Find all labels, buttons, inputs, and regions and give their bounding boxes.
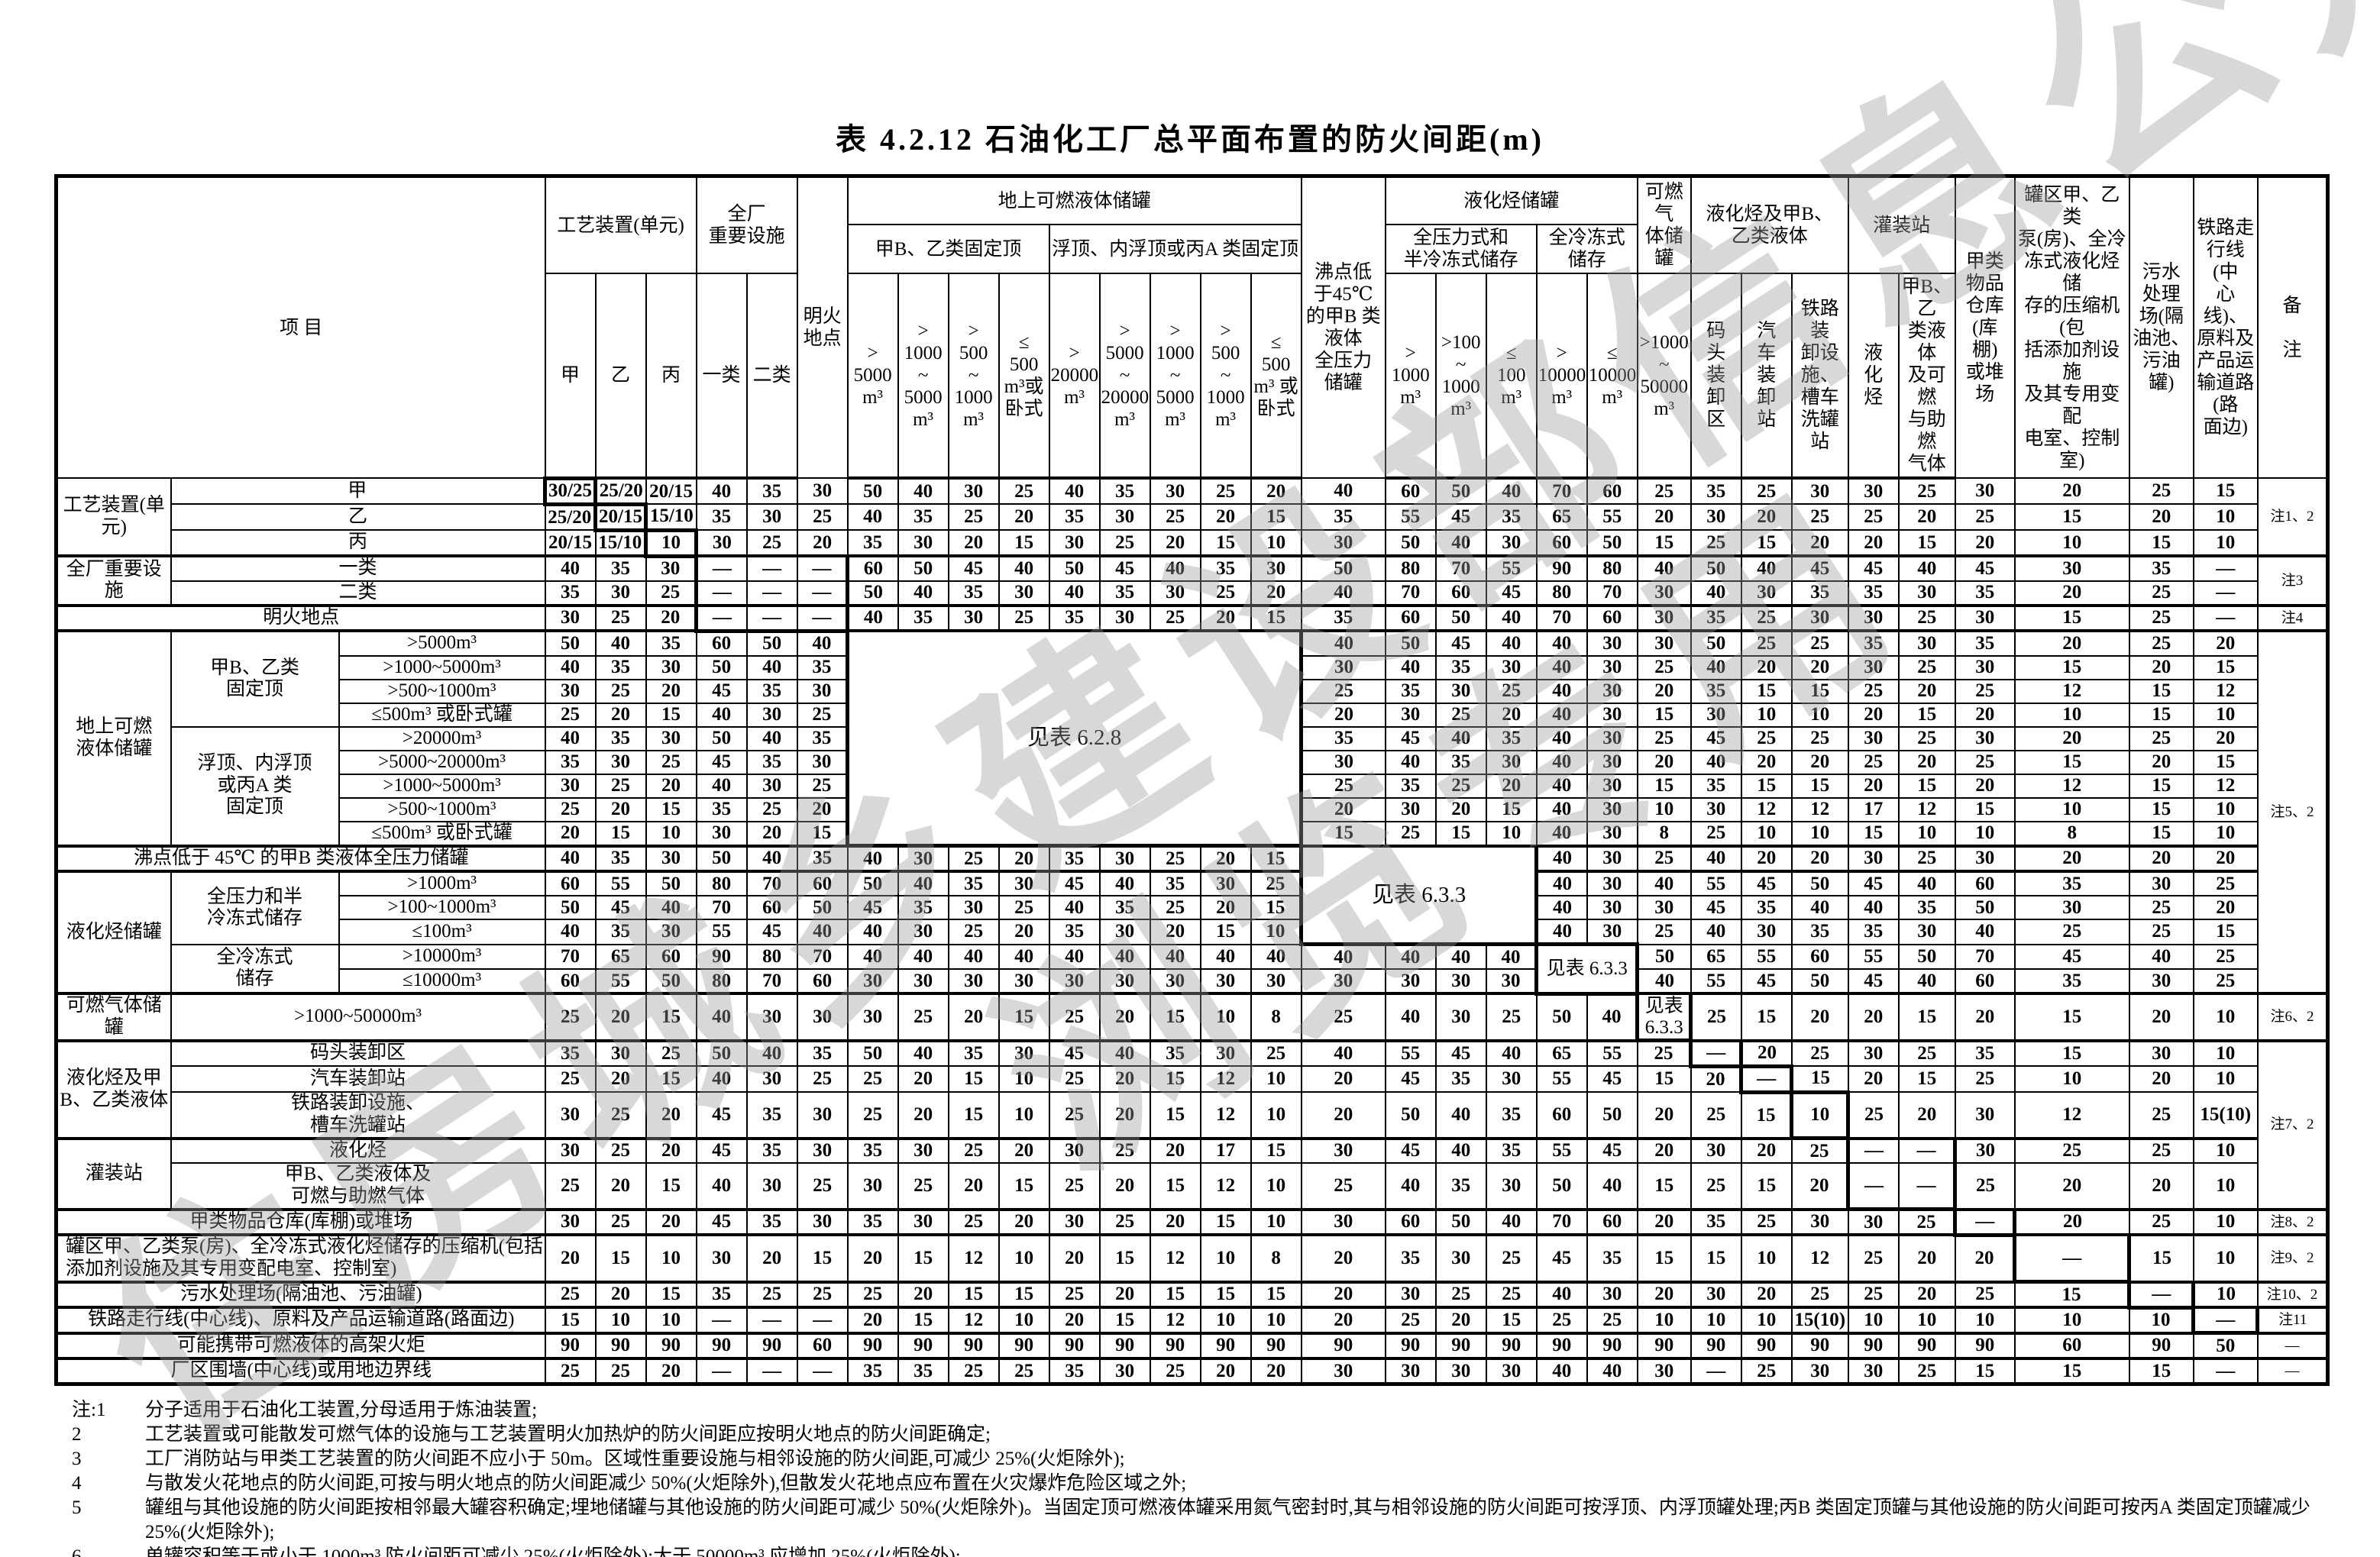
distance-cell: 20	[545, 822, 596, 846]
distance-cell: 50	[1899, 945, 1955, 970]
distance-cell: 30	[1638, 896, 1691, 919]
distance-cell: 25	[1638, 1041, 1691, 1067]
distance-cell: 70	[1386, 581, 1436, 606]
distance-cell: 20	[1792, 751, 1848, 774]
distance-cell: 25	[1955, 751, 2015, 774]
distance-cell: 20/15	[646, 478, 697, 504]
distance-cell: 12	[1741, 798, 1792, 822]
distance-cell: 90	[646, 1333, 697, 1359]
distance-cell: 20	[898, 1066, 949, 1092]
header-cell: >100 ~ 1000 m³	[1436, 273, 1486, 478]
distance-cell: 45	[1691, 896, 1741, 919]
distance-cell: —	[1741, 1066, 1792, 1092]
distance-cell: 25	[999, 896, 1049, 919]
distance-cell: 90	[697, 1333, 747, 1359]
distance-cell: 15	[2194, 751, 2258, 774]
distance-cell: 35	[898, 1358, 949, 1384]
distance-cell: 30	[1100, 606, 1150, 632]
distance-cell: 30	[747, 1066, 797, 1092]
distance-cell: 40	[1899, 969, 1955, 993]
distance-cell: 45	[697, 1139, 747, 1164]
distance-cell: 8	[1251, 993, 1302, 1041]
distance-cell: 50	[1792, 871, 1848, 896]
distance-cell: 10	[2194, 993, 2258, 1041]
distance-cell: 25	[1792, 504, 1848, 530]
distance-cell: 50	[747, 631, 797, 656]
distance-cell: 25	[1201, 581, 1251, 606]
distance-cell: 25	[545, 1358, 596, 1384]
distance-cell: 20	[1150, 1139, 1201, 1164]
distance-cell: 12	[949, 1235, 999, 1282]
header-cell: 铁路走 行线(中 心线)、 原料及 产品运 输道路 (路 面边)	[2194, 176, 2258, 479]
distance-cell: 30	[1486, 969, 1537, 993]
distance-cell: 40	[898, 1041, 949, 1067]
distance-cell: 20	[1638, 1282, 1691, 1308]
distance-cell: 40	[1638, 871, 1691, 896]
distance-cell: —	[747, 1358, 797, 1384]
distance-cell: 25	[1150, 896, 1201, 919]
distance-cell: 50	[1587, 530, 1638, 556]
distance-cell: 12	[1150, 1307, 1201, 1333]
distance-cell: 40	[1537, 751, 1587, 774]
distance-cell: 12	[1899, 798, 1955, 822]
distance-cell: 90	[1741, 1333, 1792, 1359]
table-title: 表 4.2.12 石油化工厂总平面布置的防火间距(m)	[0, 0, 2380, 159]
distance-cell: 12	[1150, 1235, 1201, 1282]
distance-cell: 35	[1792, 581, 1848, 606]
distance-cell: 45	[1386, 727, 1436, 751]
distance-cell: 25	[848, 1066, 898, 1092]
distance-cell: 20	[848, 1235, 898, 1282]
distance-cell: 30	[1691, 798, 1741, 822]
distance-cell: 8	[1251, 1235, 1302, 1282]
distance-cell: 20	[646, 606, 697, 632]
distance-cell: 40	[1587, 1358, 1638, 1384]
distance-cell: 30	[1386, 798, 1436, 822]
distance-cell: 20	[2015, 478, 2129, 504]
note-text: 与散发火花地点的防火间距,可按与明火地点的防火间距减少 50%(火炬除外),但散…	[145, 1471, 2327, 1496]
distance-cell: 30	[1691, 1282, 1741, 1308]
distance-cell: 30	[1100, 969, 1150, 993]
distance-cell: 30	[797, 680, 848, 703]
distance-cell: 20	[1302, 798, 1386, 822]
distance-cell: 20	[596, 1163, 646, 1210]
distance-cell: 20	[1848, 774, 1899, 798]
row-label: 罐区甲、乙类泵(房)、全冷冻式液化烃储存的压缩机(包括添加剂设施及其专用变配电室…	[57, 1235, 545, 1282]
distance-cell: 25	[1049, 1163, 1100, 1210]
distance-cell: 45	[1792, 556, 1848, 581]
header-cell: 乙	[596, 273, 646, 478]
distance-cell: 30	[1486, 1066, 1537, 1092]
header-cell: > 1000 ~ 5000 m³	[898, 273, 949, 478]
distance-cell: 15	[1638, 703, 1691, 727]
distance-cell: 70	[797, 945, 848, 970]
distance-cell: 15	[1638, 530, 1691, 556]
distance-cell: 45	[1486, 581, 1537, 606]
distance-cell: 30	[2129, 1041, 2194, 1067]
distance-cell: 40	[747, 727, 797, 751]
header-cell: 污水 处理 场(隔 油池、 污油 罐)	[2129, 176, 2194, 479]
distance-cell: 15	[1251, 846, 1302, 872]
distance-cell: 25	[1302, 1163, 1386, 1210]
header-cell: > 500 ~ 1000 m³	[949, 273, 999, 478]
distance-cell: 35	[747, 478, 797, 504]
distance-cell: 30	[1049, 530, 1100, 556]
distance-cell: 15	[2129, 822, 2194, 846]
distance-cell: 15	[1792, 680, 1848, 703]
distance-cell: 40	[1049, 581, 1100, 606]
distance-cell: 30	[1587, 727, 1638, 751]
distance-cell: 10	[2194, 1139, 2258, 1164]
distance-cell: 20	[1899, 1092, 1955, 1139]
distance-cell: 15	[2015, 656, 2129, 680]
note-text: 工厂消防站与甲类工艺装置的防火间距不应小于 50m。区域性重要设施与相邻设施的防…	[145, 1447, 2327, 1471]
distance-cell: 25	[1049, 1092, 1100, 1139]
distance-cell: 90	[1302, 1333, 1386, 1359]
distance-cell: 40	[1436, 727, 1486, 751]
distance-cell: 10	[2129, 1307, 2194, 1333]
distance-cell: 25	[1537, 1307, 1587, 1333]
distance-cell: 50	[1691, 556, 1741, 581]
note-cell: 注7、2	[2258, 1041, 2328, 1210]
distance-cell: 80	[747, 945, 797, 970]
distance-cell: 25	[1899, 606, 1955, 632]
distance-cell: 30	[1955, 656, 2015, 680]
distance-cell: 25	[1691, 1163, 1741, 1210]
distance-cell: 40	[1537, 680, 1587, 703]
distance-cell: 20	[1792, 530, 1848, 556]
distance-cell: 30	[1741, 581, 1792, 606]
distance-cell: 40	[1741, 556, 1792, 581]
header-cell: ≤ 500 m³ 或 卧式	[1251, 273, 1302, 478]
distance-cell: —	[797, 581, 848, 606]
row-label: 浮顶、内浮顶 或丙A 类 固定顶	[171, 727, 339, 846]
distance-cell: 90	[1537, 556, 1587, 581]
distance-cell: 20	[1201, 846, 1251, 872]
distance-cell: 35	[1436, 751, 1486, 774]
note-cell: 注8、2	[2258, 1210, 2328, 1236]
distance-cell: 10	[1741, 822, 1792, 846]
distance-cell: 20	[1741, 846, 1792, 872]
distance-cell: 25	[1638, 656, 1691, 680]
distance-cell: 20	[2129, 1066, 2194, 1092]
distance-cell: 40	[747, 656, 797, 680]
distance-cell: 30	[1436, 1358, 1486, 1384]
distance-cell: 15	[1899, 530, 1955, 556]
distance-cell: 25	[1100, 1139, 1150, 1164]
distance-cell: —	[1848, 1139, 1899, 1164]
distance-cell: 20	[1741, 656, 1792, 680]
distance-cell: 35	[1302, 504, 1386, 530]
distance-cell: 12	[1201, 1163, 1251, 1210]
distance-cell: 25	[646, 1041, 697, 1067]
distance-cell: 20	[1251, 478, 1302, 504]
cross-reference-cell: 见表 6.3.3	[1638, 993, 1691, 1041]
distance-cell: 25	[1386, 1307, 1436, 1333]
distance-cell: 17	[1848, 798, 1899, 822]
distance-cell: 15	[1638, 1066, 1691, 1092]
distance-cell: 50	[1386, 631, 1436, 656]
distance-cell: —	[1955, 1210, 2015, 1236]
distance-cell: 30	[1486, 751, 1537, 774]
distance-cell: 40	[1386, 945, 1436, 970]
distance-cell: 70	[1537, 1210, 1587, 1236]
distance-cell: 35	[898, 504, 949, 530]
distance-cell: 20/15	[545, 530, 596, 556]
distance-cell: 30	[1691, 703, 1741, 727]
distance-cell: 15	[596, 822, 646, 846]
distance-cell: 45	[1955, 556, 2015, 581]
distance-cell: 30	[1587, 798, 1638, 822]
distance-cell: 60	[697, 631, 747, 656]
distance-cell: 90	[1955, 1333, 2015, 1359]
distance-cell: 30	[1587, 680, 1638, 703]
distance-cell: 30	[1486, 530, 1537, 556]
distance-cell: 20	[1201, 896, 1251, 919]
distance-cell: 25	[1848, 751, 1899, 774]
distance-cell: 45	[1691, 727, 1741, 751]
distance-cell: 15	[949, 1092, 999, 1139]
distance-cell: 40	[1486, 945, 1537, 970]
distance-cell: 25	[999, 1358, 1049, 1384]
distance-cell: 65	[1691, 945, 1741, 970]
distance-cell: 30	[1587, 1282, 1638, 1308]
distance-cell: 20	[1955, 993, 2015, 1041]
distance-cell: 15	[646, 1163, 697, 1210]
distance-cell: 30	[898, 919, 949, 945]
distance-cell: 90	[1691, 1333, 1741, 1359]
distance-cell: 40	[1486, 1041, 1537, 1067]
distance-cell: 10	[1848, 1307, 1899, 1333]
distance-cell: 20	[2194, 896, 2258, 919]
distance-cell: 40	[1386, 1163, 1436, 1210]
distance-cell: 10	[2015, 1066, 2129, 1092]
distance-cell: 50	[1792, 969, 1848, 993]
row-label: >5000m³	[339, 631, 545, 656]
distance-cell: 30	[1201, 1041, 1251, 1067]
distance-cell: 30	[1302, 530, 1386, 556]
distance-cell: 55	[1386, 1041, 1436, 1067]
distance-cell: 30	[1792, 606, 1848, 632]
distance-cell: 70	[1537, 478, 1587, 504]
header-cell: 罐区甲、乙类 泵(房)、全冷 冻式液化烃储 存的压缩机(包 括添加剂设施 及其专…	[2015, 176, 2129, 479]
distance-cell: 10	[646, 530, 697, 556]
header-cell: 沸点低 于45℃ 的甲B 类 液体 全压力 储罐	[1302, 176, 1386, 479]
distance-cell: 40	[697, 774, 747, 798]
distance-cell: 30	[797, 1092, 848, 1139]
header-cell: ≤ 10000 m³	[1587, 273, 1638, 478]
distance-cell: 30	[1848, 606, 1899, 632]
distance-cell: 25	[2015, 919, 2129, 945]
distance-cell: 30	[545, 1092, 596, 1139]
distance-cell: 30	[1486, 656, 1537, 680]
distance-cell: 25	[1638, 478, 1691, 504]
distance-cell: 15	[545, 1307, 596, 1333]
distance-cell: 50	[1638, 945, 1691, 970]
distance-cell: 30	[2129, 871, 2194, 896]
distance-cell: 90	[1638, 1333, 1691, 1359]
distance-cell: 40	[848, 504, 898, 530]
distance-cell: 30	[1955, 606, 2015, 632]
distance-cell: 25	[1302, 774, 1386, 798]
distance-cell: 20	[596, 1282, 646, 1308]
distance-cell: —	[797, 556, 848, 581]
distance-cell: 40	[1537, 871, 1587, 896]
header-cell: 码 头 装 卸 区	[1691, 273, 1741, 478]
distance-cell: 30	[747, 703, 797, 727]
distance-cell: 30	[1302, 656, 1386, 680]
distance-cell: 40	[697, 1066, 747, 1092]
distance-cell: 25	[1899, 1358, 1955, 1384]
distance-cell: 40	[898, 581, 949, 606]
distance-cell: 30	[1691, 1139, 1741, 1164]
distance-cell: 40	[1486, 606, 1537, 632]
distance-cell: 30	[797, 751, 848, 774]
row-label: >100~1000m³	[339, 896, 545, 919]
distance-cell: 40	[1537, 896, 1587, 919]
distance-cell: 70	[1587, 581, 1638, 606]
row-label: 液化烃储罐	[57, 871, 171, 993]
distance-cell: 15	[2015, 1041, 2129, 1067]
distance-cell: 55	[1691, 969, 1741, 993]
header-cell: 甲B、乙类固定顶	[848, 225, 1049, 273]
distance-cell: 45	[747, 919, 797, 945]
distance-cell: 45	[697, 680, 747, 703]
distance-cell: 10	[2194, 504, 2258, 530]
distance-cell: 50	[898, 556, 949, 581]
header-cell: > 20000 m³	[1049, 273, 1100, 478]
distance-cell: 25	[1955, 1066, 2015, 1092]
distance-cell: 50	[646, 871, 697, 896]
header-cell: > 5000 m³	[848, 273, 898, 478]
distance-cell: 25	[898, 1163, 949, 1210]
distance-cell: 30	[1150, 581, 1201, 606]
distance-cell: 15	[1638, 774, 1691, 798]
distance-cell: 50	[848, 1041, 898, 1067]
distance-cell: 70	[747, 871, 797, 896]
distance-cell: 25	[545, 1066, 596, 1092]
distance-cell: 15	[1150, 1282, 1201, 1308]
distance-cell: 50	[545, 631, 596, 656]
distance-cell: 20	[1486, 774, 1537, 798]
note-cell: 注4	[2258, 606, 2328, 632]
distance-cell: 30	[646, 656, 697, 680]
row-label: >20000m³	[339, 727, 545, 751]
distance-cell: 25	[1899, 846, 1955, 872]
distance-cell: 25	[596, 774, 646, 798]
distance-cell: 15	[2129, 1235, 2194, 1282]
distance-cell: —	[2194, 1307, 2258, 1333]
distance-cell: 30	[1049, 1139, 1100, 1164]
distance-cell: 60	[1386, 606, 1436, 632]
distance-cell: 30	[898, 846, 949, 872]
distance-cell: 40	[1537, 822, 1587, 846]
distance-cell: 35	[949, 1041, 999, 1067]
distance-cell: 25	[1049, 1066, 1100, 1092]
note-text: 分子适用于石油化工装置,分母适用于炼油装置;	[145, 1398, 2327, 1423]
distance-cell: 20	[2015, 631, 2129, 656]
distance-cell: 10	[646, 822, 697, 846]
header-cell: 全冷冻式 储存	[1537, 225, 1638, 273]
distance-cell: 20	[1741, 1041, 1792, 1067]
distance-cell: 35	[596, 656, 646, 680]
distance-cell: 30	[596, 751, 646, 774]
distance-cell: 40	[1436, 1139, 1486, 1164]
distance-cell: 20	[949, 993, 999, 1041]
distance-cell: 12	[1201, 1092, 1251, 1139]
distance-cell: 70	[1436, 556, 1486, 581]
distance-cell: 25	[545, 798, 596, 822]
distance-cell: 35	[1691, 774, 1741, 798]
row-label: 甲B、乙类 固定顶	[171, 631, 339, 727]
distance-cell: 25	[747, 798, 797, 822]
row-label: 液化烃及甲B、乙类液体	[57, 1041, 171, 1139]
distance-cell: 25	[898, 993, 949, 1041]
distance-cell: 15	[596, 1235, 646, 1282]
distance-cell: 15	[999, 1163, 1049, 1210]
distance-cell: 35	[1150, 1041, 1201, 1067]
distance-cell: 20	[2129, 1163, 2194, 1210]
distance-cell: 12	[1792, 798, 1848, 822]
note-item: 3工厂消防站与甲类工艺装置的防火间距不应小于 50m。区域性重要设施与相邻设施的…	[64, 1447, 2327, 1471]
distance-cell: 25	[797, 703, 848, 727]
distance-cell: 25	[797, 1066, 848, 1092]
distance-cell: 15	[1792, 1066, 1848, 1092]
distance-cell: 20	[646, 1358, 697, 1384]
distance-cell: 40	[1537, 1282, 1587, 1308]
row-label: >500~1000m³	[339, 680, 545, 703]
distance-cell: 40	[697, 478, 747, 504]
distance-cell: 30	[1251, 556, 1302, 581]
distance-cell: 35	[2129, 556, 2194, 581]
distance-cell: 35	[1848, 581, 1899, 606]
distance-cell: 35	[2015, 969, 2129, 993]
distance-cell: 10	[1792, 822, 1848, 846]
distance-cell: 15	[1302, 822, 1386, 846]
distance-cell: 15	[2129, 1358, 2194, 1384]
distance-cell: 25	[848, 1092, 898, 1139]
distance-cell: 90	[1386, 1333, 1436, 1359]
distance-cell: 40	[545, 556, 596, 581]
distance-cell: 45	[848, 896, 898, 919]
distance-cell: 15	[1100, 1235, 1150, 1282]
row-label: 地上可燃 液体储罐	[57, 631, 171, 846]
distance-cell: 25	[1691, 993, 1741, 1041]
distance-cell: 20	[1741, 1282, 1792, 1308]
distance-cell: 10	[2194, 530, 2258, 556]
distance-cell: 30	[797, 993, 848, 1041]
distance-cell: 40	[1049, 478, 1100, 504]
distance-cell: 30	[1955, 727, 2015, 751]
distance-cell: 10	[2194, 1282, 2258, 1308]
distance-cell: 10	[1251, 1066, 1302, 1092]
distance-cell: 40	[1587, 993, 1638, 1041]
distance-cell: 20	[2194, 631, 2258, 656]
distance-cell: 80	[1537, 581, 1587, 606]
distance-cell: 15	[1638, 1163, 1691, 1210]
distance-cell: 50	[697, 727, 747, 751]
row-label: 灌装站	[57, 1139, 171, 1210]
distance-cell: 30	[1436, 993, 1486, 1041]
distance-cell: 20	[1302, 1066, 1386, 1092]
row-label: >1000~5000m³	[339, 656, 545, 680]
distance-cell: 10	[999, 1066, 1049, 1092]
distance-cell: 30	[1848, 1041, 1899, 1067]
distance-cell: 10	[1741, 1235, 1792, 1282]
distance-cell: 45	[2015, 945, 2129, 970]
distance-cell: 25	[2129, 478, 2194, 504]
note-item: 5罐组与其他设施的防火间距按相邻最大罐容积确定;埋地储罐与其他设施的防火间距可减…	[64, 1496, 2327, 1545]
